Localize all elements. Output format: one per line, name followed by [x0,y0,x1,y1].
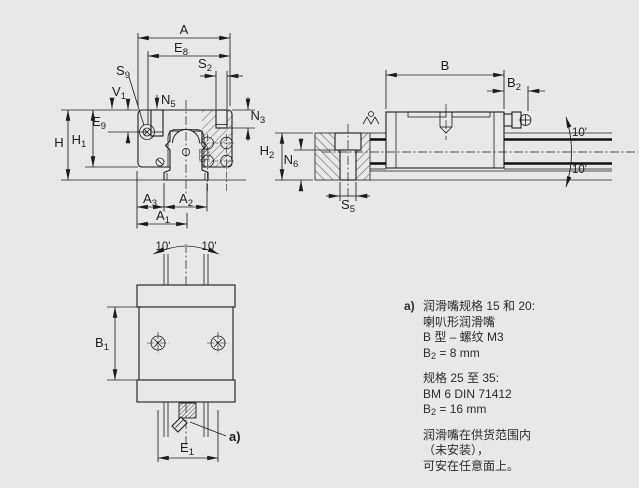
grease-nipple-icon [504,112,531,128]
note-line: B2 = 16 mm [423,402,535,421]
angle-label-lower: 10' [572,164,587,176]
angle-label-top-right: 10' [202,241,217,253]
footnote-annotation: a) 润滑嘴规格 15 和 20: 喇叭形润滑嘴 B 型 – 螺纹 M3 B2 … [404,299,619,481]
top-view: 10' 10' B1 a) E1 [95,241,241,462]
footnote-text: 润滑嘴规格 15 和 20: 喇叭形润滑嘴 B 型 – 螺纹 M3 B2 = 8… [423,299,535,481]
carriage-end-cap-top [137,285,235,307]
s2-thread-hole [216,110,227,128]
note-line: 规格 25 至 35: [423,371,535,387]
dim-label-B2: B2 [507,75,521,93]
note-line: BM 6 DIN 71412 [423,387,535,403]
dim-B1 [107,307,139,380]
grease-nipple-sketch-icon [363,112,379,125]
dim-H1 [85,110,138,167]
dim-label-E1: E1 [180,440,194,458]
angle-label-upper: 10' [572,127,587,139]
callout-marker: a) [229,429,241,444]
note-line: （未安装）， [423,443,535,459]
dim-label-A: A [180,22,189,37]
dim-label-S5: S5 [341,197,355,215]
dim-label-B1: B1 [95,335,109,353]
angle-label-top-left: 10' [156,241,171,253]
dim-H2 [275,133,313,180]
cross-section-view: A E8 S2 S9 V1 N5 E9 [54,22,265,229]
carriage-body [386,112,504,168]
dim-label-A3: A3 [143,191,157,209]
side-view: 10' 10' B B2 H2 N6 [260,58,638,215]
dim-S9-leader [129,77,144,126]
grease-nipple-top-view-icon [172,403,196,432]
technical-drawing-page: A E8 S2 S9 V1 N5 E9 [0,0,639,488]
footnote-marker: a) [404,299,423,481]
dim-label-A2: A2 [179,191,193,209]
note-line: B 型 – 螺纹 M3 [423,330,535,346]
dim-label-B: B [441,58,450,73]
dim-B [386,70,504,109]
footnote-group-2: 规格 25 至 35: BM 6 DIN 71412 B2 = 16 mm [423,371,535,421]
dim-label-N3: N3 [251,108,266,126]
dim-S2 [200,71,243,109]
footnote-group-1: 润滑嘴规格 15 和 20: 喇叭形润滑嘴 B 型 – 螺纹 M3 B2 = 8… [423,299,535,364]
dim-label-N6: N6 [284,152,299,170]
dim-label-S9: S9 [116,63,130,81]
dim-label-V1: V1 [112,84,126,102]
note-line: 喇叭形润滑嘴 [423,315,535,331]
dim-label-H2: H2 [260,143,275,161]
footnote-group-3: 润滑嘴在供货范围内 （未安装）， 可安在任意面上。 [423,428,535,475]
dim-label-H: H [54,135,63,150]
note-line: 可安在任意面上。 [423,459,535,475]
note-line: 润滑嘴规格 15 和 20: [423,299,535,315]
dim-label-E9: E9 [92,114,106,132]
note-line: B2 = 8 mm [423,346,535,365]
note-line: 润滑嘴在供货范围内 [423,428,535,444]
dim-label-S2: S2 [198,56,212,74]
carriage-end-cap-bottom [137,380,235,402]
dim-label-E8: E8 [174,40,188,58]
dim-label-A1: A1 [156,208,170,226]
dim-label-N5: N5 [161,92,176,110]
dim-label-H1: H1 [72,132,87,150]
